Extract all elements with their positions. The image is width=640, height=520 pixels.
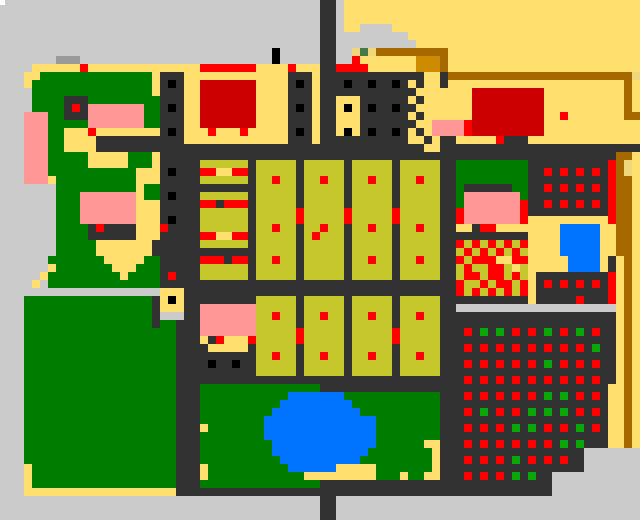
city-map-canvas[interactable]: [0, 0, 640, 520]
game-minimap-viewport: [0, 0, 640, 520]
